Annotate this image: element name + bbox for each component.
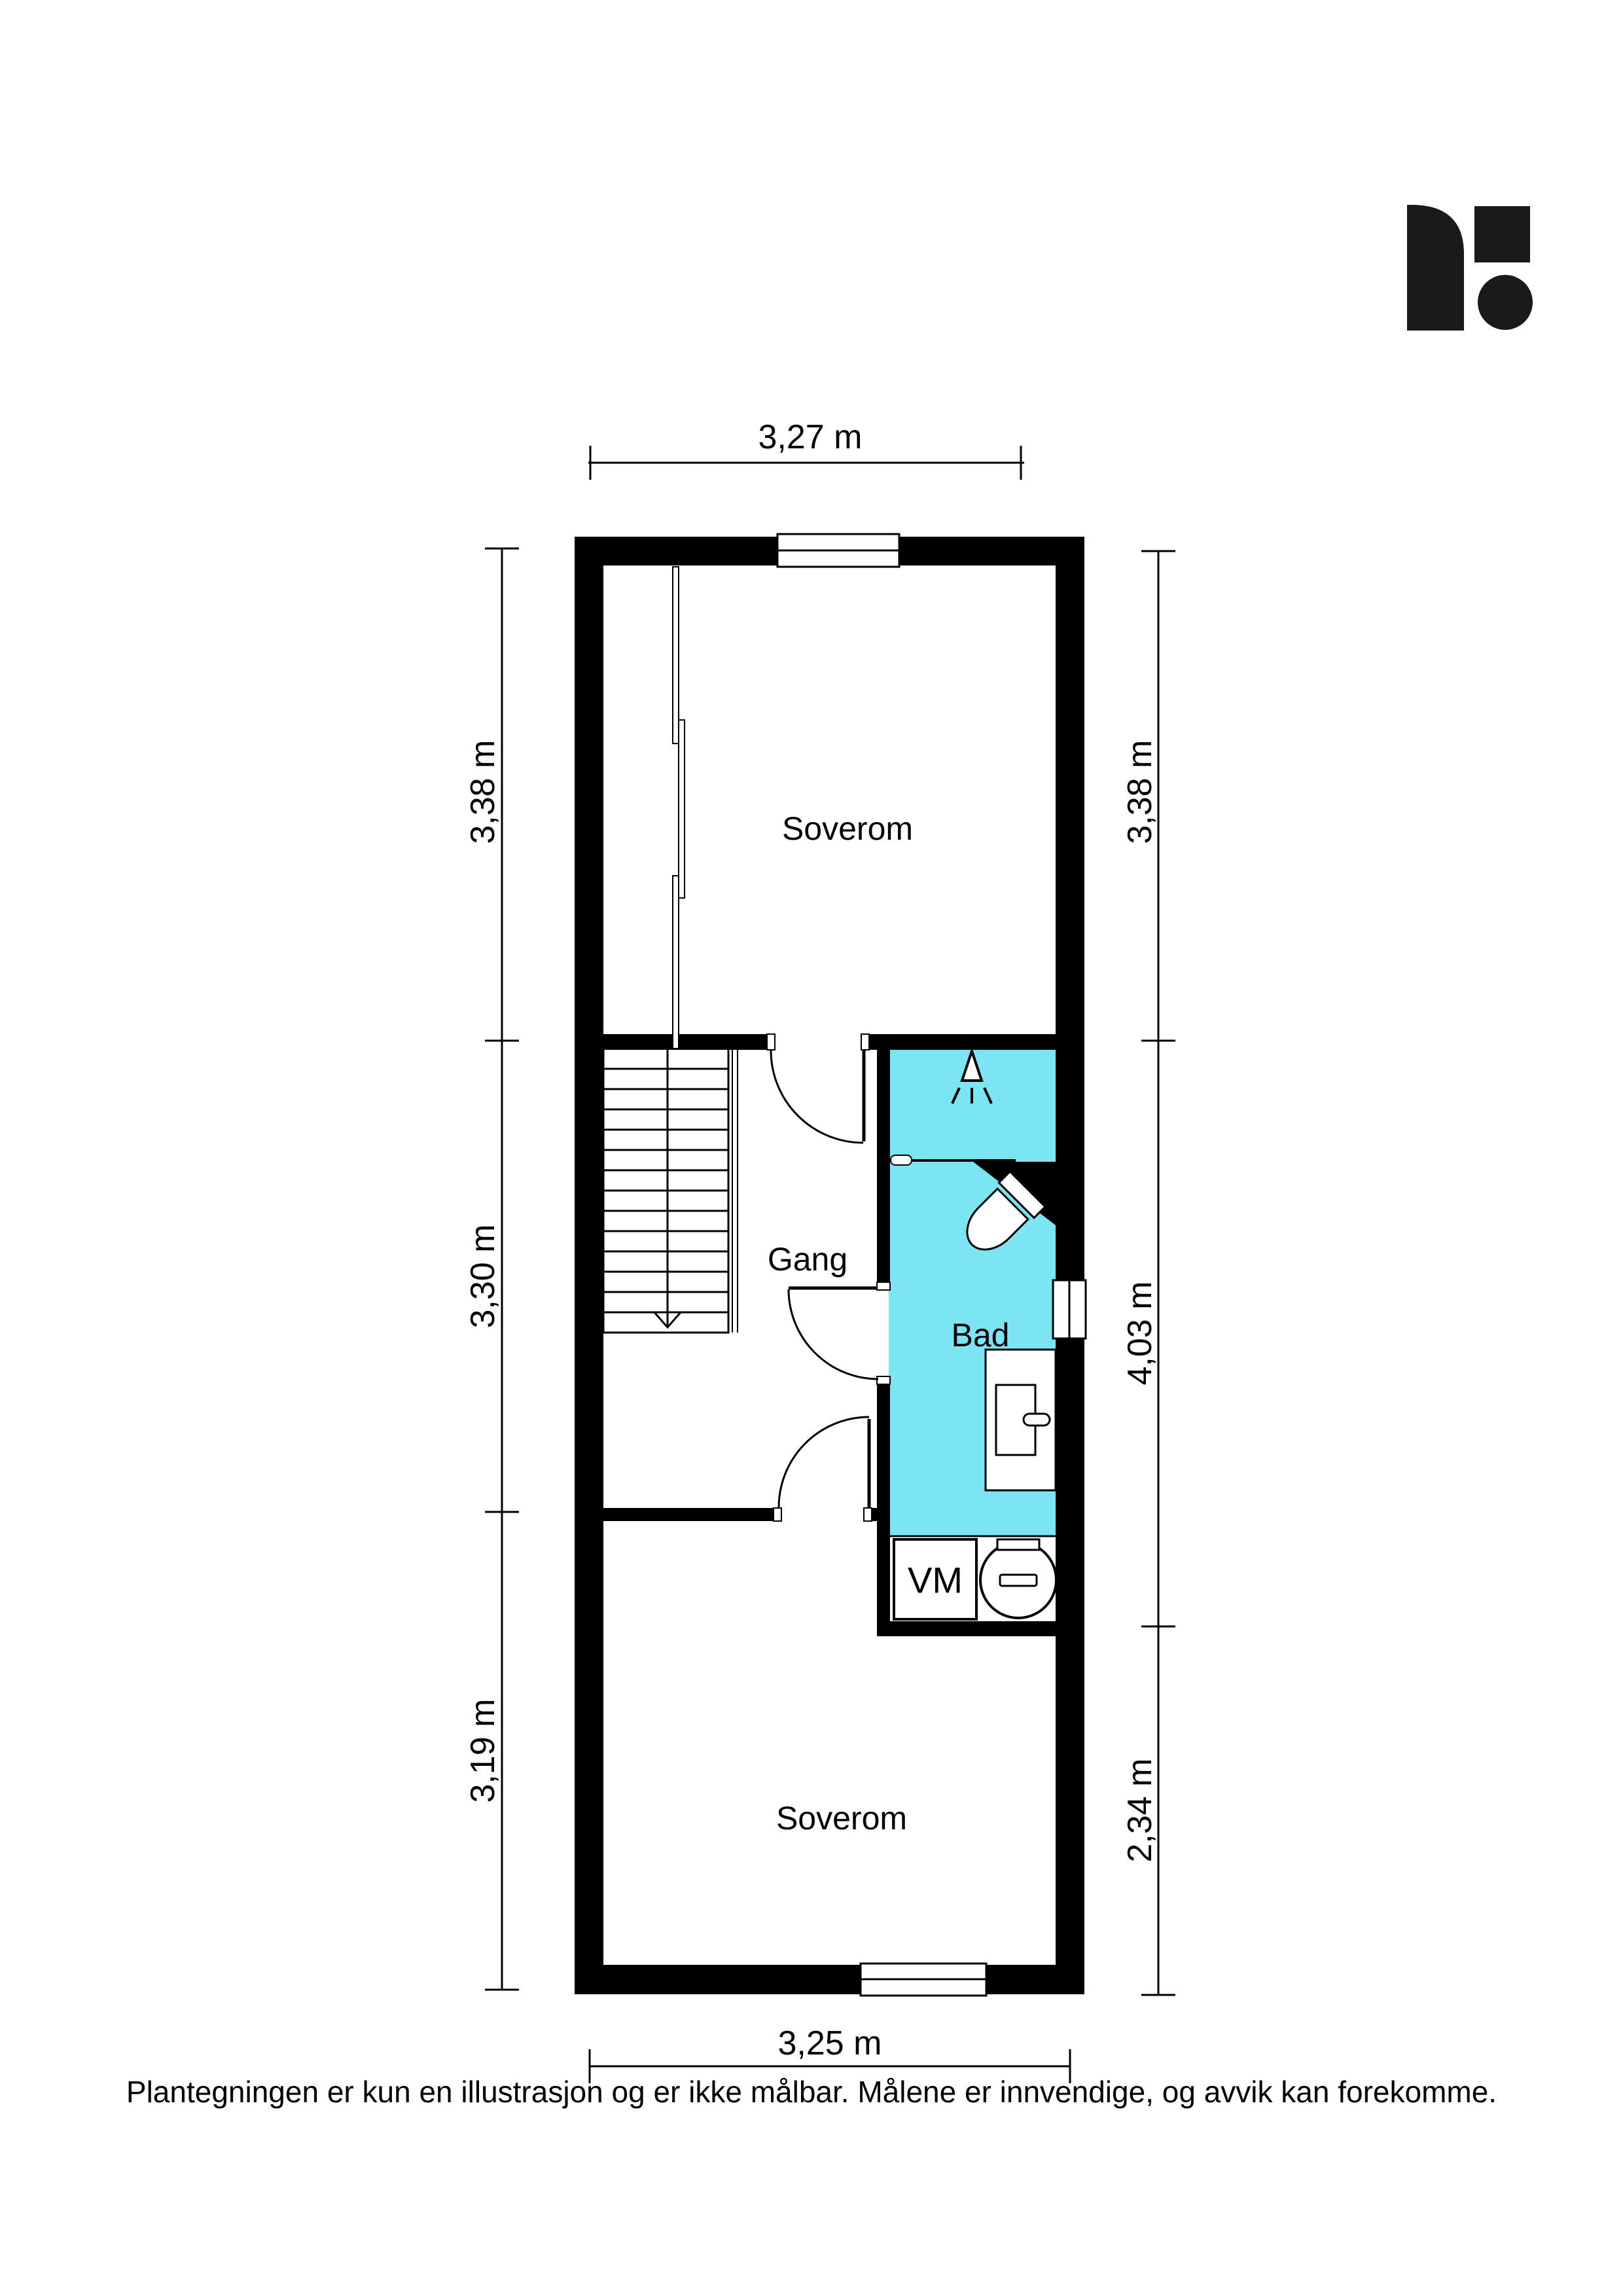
water-heater <box>980 1539 1056 1618</box>
dimension-right: 3,38 m 4,03 m 2,34 m <box>1121 551 1175 1995</box>
sink-vanity <box>986 1350 1056 1490</box>
door-soverom-bottom <box>774 1417 872 1521</box>
page: 3,27 m 3,25 m 3,38 m 3,30 m 3,19 m 3,38 … <box>0 0 1623 2296</box>
door-jamb <box>861 1034 869 1050</box>
dim-label-left-2: 3,30 m <box>464 1225 502 1329</box>
wall-left <box>575 537 603 1994</box>
dim-label-right-2: 4,03 m <box>1121 1282 1159 1386</box>
wall-soverom-gang-left <box>603 1034 771 1050</box>
door-swing-arc <box>779 1417 869 1507</box>
water-heater-slot <box>1000 1575 1037 1586</box>
dim-label-bottom: 3,25 m <box>778 2024 882 2062</box>
sliding-panel <box>679 720 685 898</box>
sliding-panel <box>673 876 679 1049</box>
faucet-icon <box>1024 1414 1050 1426</box>
window-right-bad <box>1053 1280 1086 1338</box>
floor-plan-drawing: 3,27 m 3,25 m 3,38 m 3,30 m 3,19 m 3,38 … <box>0 0 1623 2296</box>
door-swing-arc <box>771 1050 863 1143</box>
door-swing-arc <box>789 1289 878 1379</box>
logo-sail-icon <box>1407 205 1464 331</box>
window-bottom <box>861 1964 986 1996</box>
door-soverom-top <box>767 1034 869 1143</box>
wall-gang-soverom2-left <box>603 1508 779 1521</box>
dim-label-left-1: 3,38 m <box>464 740 502 844</box>
dim-label-right-1: 3,38 m <box>1121 740 1159 844</box>
wardrobe-sliding-doors <box>673 567 685 1049</box>
wall-gang-bad-upper <box>877 1050 890 1285</box>
dim-label-top: 3,27 m <box>758 418 863 456</box>
dim-label-left-3: 3,19 m <box>464 1699 502 1803</box>
door-jamb <box>774 1508 781 1521</box>
wall-vm-bottom <box>877 1621 1084 1636</box>
door-jamb <box>864 1508 872 1521</box>
water-heater-cap <box>997 1539 1039 1550</box>
wall-right <box>1056 537 1084 1994</box>
window-top <box>777 534 899 567</box>
door-jamb <box>877 1282 890 1290</box>
door-jamb <box>767 1034 775 1050</box>
room-label-soverom-top: Soverom <box>782 810 913 847</box>
door-bad <box>789 1282 890 1384</box>
logo-square-icon <box>1474 206 1530 262</box>
dimension-top: 3,27 m <box>588 418 1024 480</box>
shower-door-hinge <box>891 1155 912 1165</box>
company-logo <box>1407 205 1533 331</box>
room-label-bad: Bad <box>952 1317 1010 1354</box>
dim-label-right-3: 2,34 m <box>1121 1759 1159 1863</box>
door-jamb <box>877 1376 890 1384</box>
stair-treads <box>603 1069 728 1312</box>
staircase <box>603 1049 738 1333</box>
room-label-gang: Gang <box>768 1241 847 1278</box>
room-label-vm: VM <box>908 1560 963 1601</box>
wall-bottom <box>575 1965 1084 1994</box>
dimension-left: 3,38 m 3,30 m 3,19 m <box>464 548 519 1990</box>
wall-soverom-gang-right <box>865 1034 1056 1050</box>
logo-circle-icon <box>1478 275 1533 330</box>
sliding-panel <box>673 567 679 744</box>
room-label-soverom-bottom: Soverom <box>776 1800 907 1837</box>
disclaimer-text: Plantegningen er kun en illustrasjon og … <box>126 2075 1497 2109</box>
wall-gang-bad-lower <box>877 1383 890 1621</box>
